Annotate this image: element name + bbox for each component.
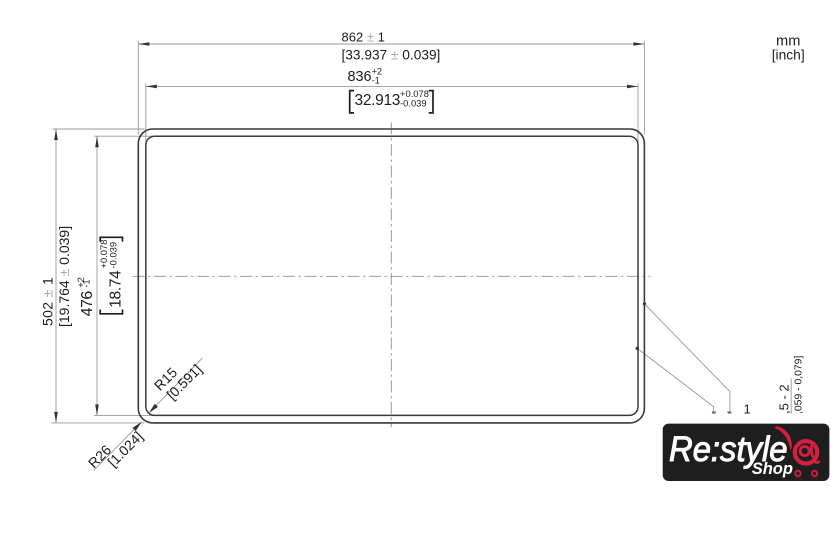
svg-text:Shop: Shop: [752, 460, 793, 478]
svg-text:-0.039: -0.039: [400, 97, 427, 108]
svg-text:,5 - 2: ,5 - 2: [777, 384, 792, 414]
svg-text:18.74: 18.74: [108, 270, 125, 308]
svg-text:502 ± 1: 502 ± 1: [39, 277, 55, 326]
svg-text:[33.937 ± 0.039]: [33.937 ± 0.039]: [342, 47, 441, 62]
svg-text:[inch]: [inch]: [772, 47, 805, 62]
svg-text:862 ± 1: 862 ± 1: [342, 30, 385, 45]
svg-text:,059 - 0,079]: ,059 - 0,079]: [793, 356, 804, 414]
svg-text:836: 836: [348, 69, 372, 85]
svg-text:-1: -1: [80, 279, 91, 287]
svg-text:[19.764 ± 0.039]: [19.764 ± 0.039]: [56, 226, 72, 327]
svg-text:-0.039: -0.039: [107, 242, 118, 269]
svg-text:-1: -1: [372, 76, 380, 86]
svg-text:32.913: 32.913: [355, 92, 401, 109]
svg-text:476: 476: [79, 291, 96, 317]
